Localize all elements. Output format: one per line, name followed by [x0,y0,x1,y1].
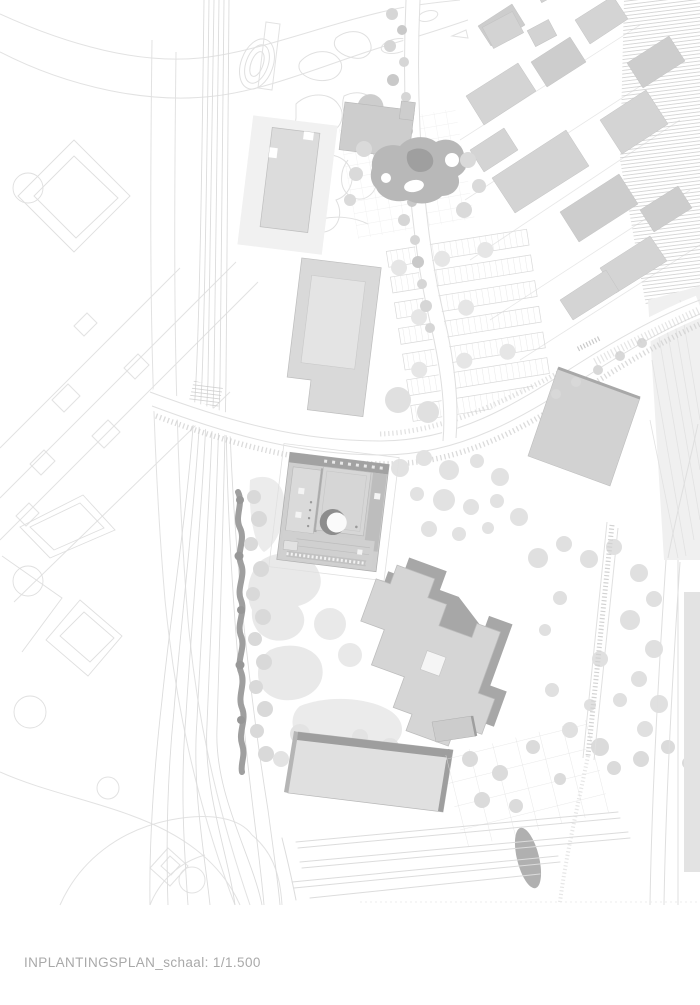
main-project-building [269,444,399,581]
tree [385,387,411,413]
right-edge-building [684,592,700,872]
bottom-parking-strips [282,812,630,900]
site-plan-sheet: INPLANTINGSPLAN_schaal: 1/1.500 [0,0,700,1005]
sports-fields-layer [2,140,130,728]
plan-caption: INPLANTINGSPLAN_schaal: 1/1.500 [24,955,261,970]
slab-building [284,731,453,812]
l-shaped-building [284,258,382,417]
site-plan-drawing [0,0,700,1005]
tree [417,401,439,423]
